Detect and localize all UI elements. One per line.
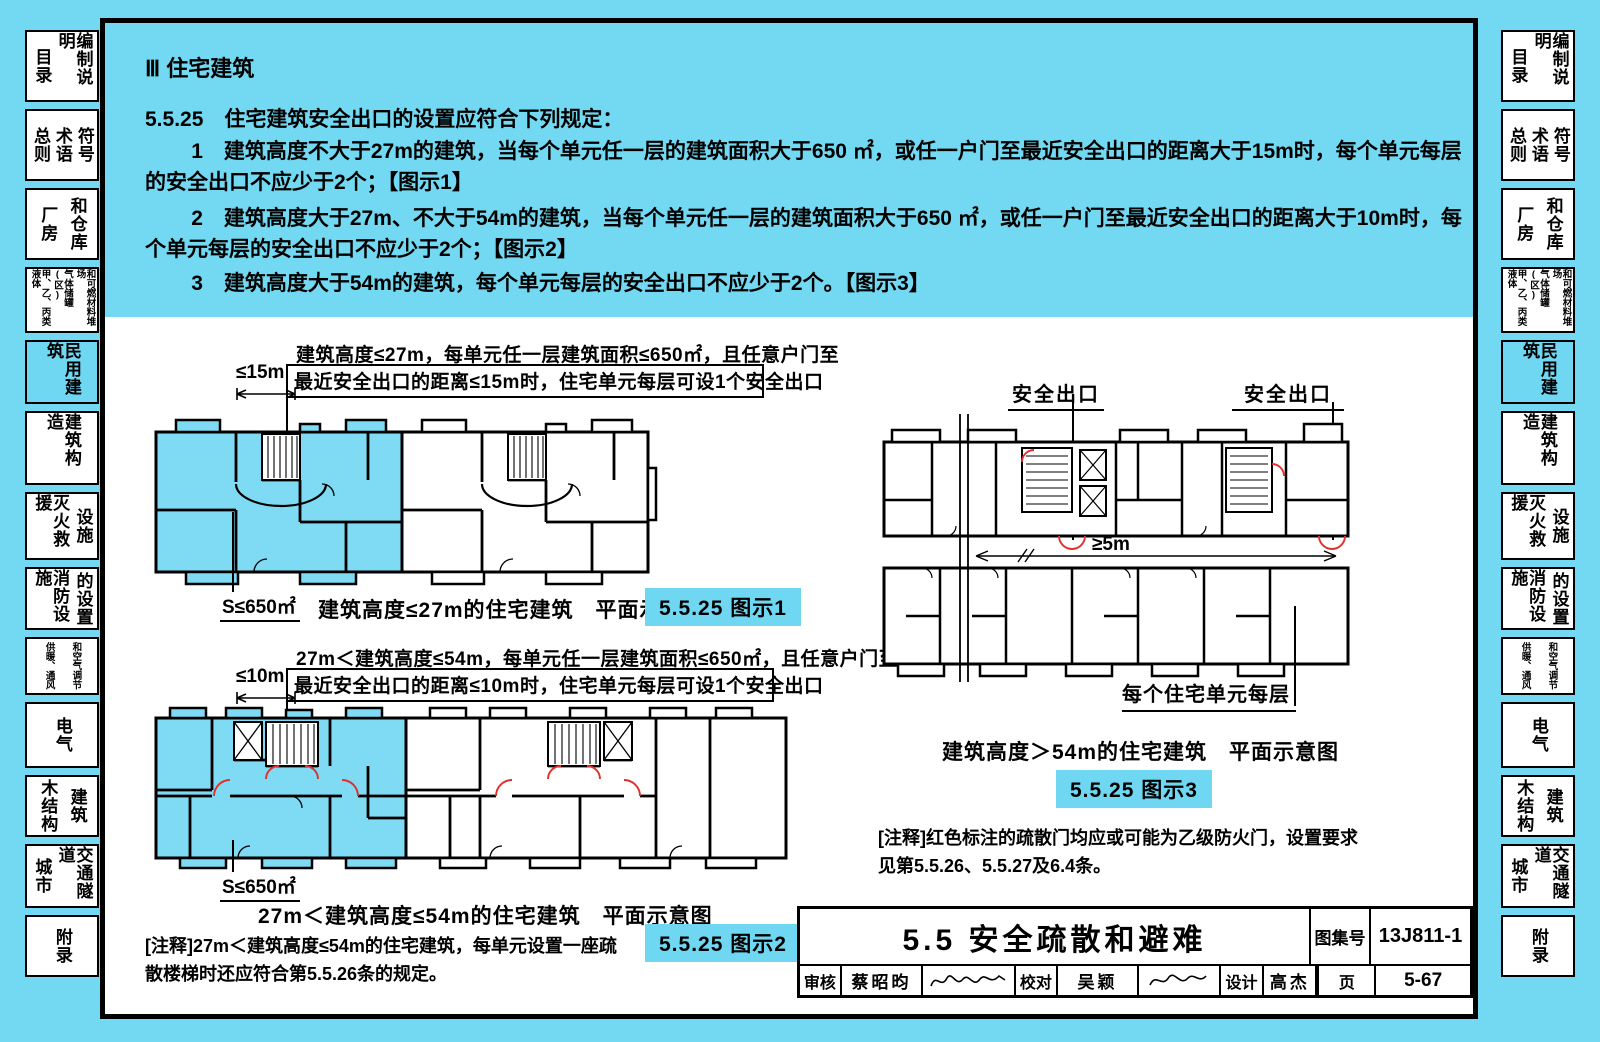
- audit-label: 审核: [800, 966, 840, 995]
- sidebar-item-liquid-gas-storage[interactable]: 甲、乙、丙类液体气体储罐(区)和可燃材料堆场: [1501, 267, 1575, 333]
- sidebar-item-label: 符号: [1551, 127, 1569, 163]
- fig3-caption: 建筑高度＞54m的住宅建筑 平面示意图: [942, 736, 1339, 766]
- sidebar-item-label: 的设置: [74, 572, 92, 626]
- sidebar-item-general-terms-symbols[interactable]: 总则术语符号: [25, 109, 99, 181]
- fig1-area-label: S≤650㎡: [220, 592, 300, 622]
- chapter-sidebar-right: 目录编制说明总则术语符号厂房和仓库甲、乙、丙类液体气体储罐(区)和可燃材料堆场民…: [1501, 30, 1575, 984]
- sidebar-item-label: 和可燃材料堆场: [1551, 269, 1571, 331]
- fig2-annotation-line1: 27m＜建筑高度≤54m，每单元任一层建筑面积≤650㎡，且任意户门至: [296, 644, 898, 671]
- sidebar-item-firefighting-rescue[interactable]: 灭火救援设施: [1501, 492, 1575, 560]
- sidebar-item-label: 灭火救援: [1508, 494, 1544, 558]
- fig1-dimension-arrow: [234, 386, 298, 402]
- fig1-annotation-line2: 最近安全出口的距离≤15m时，住宅单元每层可设1个安全出口: [286, 364, 764, 398]
- signature-scribble: [1146, 969, 1212, 993]
- sidebar-item-label: 电气: [53, 717, 71, 753]
- sidebar-item-label: 灭火救援: [32, 494, 68, 558]
- sidebar-item-label: 和空气调节: [1546, 642, 1556, 690]
- fig1-badge: 5.5.25 图示1: [645, 588, 801, 626]
- titleblock-section-title: 5.5 安全疏散和避难: [800, 909, 1309, 964]
- fig3-unit-label: 每个住宅单元每层: [1122, 678, 1296, 712]
- sidebar-item-electrical[interactable]: 电气: [1501, 702, 1575, 768]
- sidebar-item-toc-notes[interactable]: 目录编制说明: [1501, 30, 1575, 102]
- design-label: 设计: [1219, 966, 1263, 995]
- sidebar-item-label: 电气: [1529, 717, 1547, 753]
- page-label: 页: [1317, 966, 1374, 995]
- floor-plan-figure1: [150, 402, 686, 594]
- fig3-dimension-label: ≥5m: [1092, 534, 1130, 555]
- sidebar-item-appendix[interactable]: 附录: [1501, 915, 1575, 977]
- fig2-annotation-line2: 最近安全出口的距离≤10m时，住宅单元每层可设1个安全出口: [286, 668, 774, 702]
- sidebar-item-civil-buildings[interactable]: 民用建筑: [25, 340, 99, 404]
- sidebar-item-label: 城市: [1508, 858, 1526, 894]
- sidebar-item-general-terms-symbols[interactable]: 总则术语符号: [1501, 109, 1575, 181]
- fig2-area-label: S≤650㎡: [220, 872, 300, 902]
- sidebar-item-label: 甲、乙、丙类液体: [30, 269, 50, 331]
- clause-item-2: 2 建筑高度大于27m、不大于54m的建筑，当每个单元任一层的建筑面积大于650…: [145, 203, 1465, 265]
- sidebar-item-label: 木结构: [38, 779, 56, 833]
- title-block: 5.5 安全疏散和避难 图集号 13J811-1 审核 蔡昭昀 校对 吴颖 设计…: [797, 906, 1473, 998]
- sidebar-item-label: 建筑构造: [44, 413, 80, 483]
- fig3-note: [注释]红色标注的疏散门均应或可能为乙级防火门，设置要求见第5.5.26、5.5…: [878, 824, 1366, 880]
- fig1-area-leader: [232, 512, 234, 592]
- floor-plan-figure2: [150, 700, 794, 874]
- sidebar-item-hvac[interactable]: 供暖、通风和空气调节: [25, 637, 99, 695]
- sidebar-item-toc-notes[interactable]: 目录编制说明: [25, 30, 99, 102]
- page-number: 5-67: [1374, 966, 1470, 995]
- sidebar-item-label: 厂房: [1514, 206, 1532, 242]
- sidebar-item-label: 总则: [1507, 127, 1525, 163]
- sidebar-item-hvac[interactable]: 供暖、通风和空气调节: [1501, 637, 1575, 695]
- sidebar-item-label: 交通隧道: [56, 846, 92, 906]
- sidebar-item-timber-structure[interactable]: 木结构建筑: [25, 775, 99, 837]
- sidebar-item-building-construction[interactable]: 建筑构造: [1501, 411, 1575, 485]
- fig2-dimension-label: ≤10m: [236, 666, 284, 688]
- sidebar-item-city-traffic-tunnel[interactable]: 城市交通隧道: [25, 844, 99, 908]
- check-label: 校对: [1014, 966, 1056, 995]
- sidebar-item-label: 和空气调节: [70, 642, 80, 690]
- sidebar-item-label: 厂房: [38, 206, 56, 242]
- sidebar-item-label: 供暖、通风: [44, 642, 54, 690]
- sidebar-item-fire-facilities[interactable]: 消防设施的设置: [1501, 567, 1575, 630]
- fig2-badge: 5.5.25 图示2: [645, 924, 801, 962]
- fig2-note: [注释]27m＜建筑高度≤54m的住宅建筑，每单元设置一座疏散楼梯时还应符合第5…: [145, 932, 619, 988]
- sidebar-item-label: 设施: [1550, 508, 1568, 544]
- sidebar-item-label: 气体储罐(区): [52, 269, 72, 331]
- sidebar-item-label: 建筑: [68, 788, 86, 824]
- sidebar-item-label: 气体储罐(区): [1528, 269, 1548, 331]
- clause-heading: 5.5.25 住宅建筑安全出口的设置应符合下列规定：: [145, 103, 623, 133]
- sidebar-item-liquid-gas-storage[interactable]: 甲、乙、丙类液体气体储罐(区)和可燃材料堆场: [25, 267, 99, 333]
- sidebar-item-label: 木结构: [1514, 779, 1532, 833]
- sidebar-item-firefighting-rescue[interactable]: 灭火救援设施: [25, 492, 99, 560]
- chapter-sidebar-left: 目录编制说明总则术语符号厂房和仓库甲、乙、丙类液体气体储罐(区)和可燃材料堆场民…: [25, 30, 99, 984]
- sidebar-item-fire-facilities[interactable]: 消防设施的设置: [25, 567, 99, 630]
- sidebar-item-building-construction[interactable]: 建筑构造: [25, 411, 99, 485]
- sidebar-item-timber-structure[interactable]: 木结构建筑: [1501, 775, 1575, 837]
- sidebar-item-label: 术语: [53, 127, 71, 163]
- sidebar-item-label: 设施: [74, 508, 92, 544]
- sidebar-item-factory-warehouse[interactable]: 厂房和仓库: [1501, 188, 1575, 260]
- clause-item-3: 3 建筑高度大于54m的建筑，每个单元每层的安全出口不应少于2个。【图示3】: [145, 268, 1465, 299]
- sidebar-item-label: 术语: [1529, 127, 1547, 163]
- sidebar-item-factory-warehouse[interactable]: 厂房和仓库: [25, 188, 99, 260]
- sidebar-item-label: 建筑: [1544, 788, 1562, 824]
- check-name: 吴颖: [1056, 966, 1137, 995]
- sidebar-item-label: 交通隧道: [1532, 846, 1568, 906]
- sidebar-item-city-traffic-tunnel[interactable]: 城市交通隧道: [1501, 844, 1575, 908]
- audit-signature: [921, 966, 1014, 995]
- sidebar-item-label: 目录: [32, 48, 50, 84]
- atlas-number-value: 13J811-1: [1369, 909, 1470, 964]
- atlas-number-label: 图集号: [1309, 909, 1369, 964]
- design-name: 高杰: [1262, 966, 1315, 995]
- audit-name: 蔡昭昀: [840, 966, 921, 995]
- fig2-area-leader: [232, 840, 234, 872]
- sidebar-item-label: 和仓库: [1544, 197, 1562, 251]
- sidebar-item-label: 消防设施: [1508, 569, 1544, 628]
- sidebar-item-label: 目录: [1508, 48, 1526, 84]
- signature-scribble: [927, 969, 1011, 993]
- sidebar-item-label: 甲、乙、丙类液体: [1506, 269, 1526, 331]
- sidebar-item-label: 的设置: [1550, 572, 1568, 626]
- sidebar-item-label: 城市: [32, 858, 50, 894]
- fig3-badge: 5.5.25 图示3: [1056, 770, 1212, 808]
- sidebar-item-label: 民用建筑: [1520, 342, 1556, 402]
- sidebar-item-appendix[interactable]: 附录: [25, 915, 99, 977]
- sidebar-item-civil-buildings[interactable]: 民用建筑: [1501, 340, 1575, 404]
- clause-item-1: 1 建筑高度不大于27m的建筑，当每个单元任一层的建筑面积大于650 ㎡，或任一…: [145, 136, 1465, 198]
- check-signature: [1137, 966, 1218, 995]
- sidebar-item-label: 消防设施: [32, 569, 68, 628]
- sidebar-item-electrical[interactable]: 电气: [25, 702, 99, 768]
- sidebar-item-label: 附录: [1529, 928, 1547, 964]
- sidebar-item-label: 编制说明: [1532, 32, 1568, 100]
- fig1-dimension-label: ≤15m: [236, 362, 284, 384]
- sidebar-item-label: 和仓库: [68, 197, 86, 251]
- sidebar-item-label: 民用建筑: [44, 342, 80, 402]
- sidebar-item-label: 编制说明: [56, 32, 92, 100]
- sidebar-item-label: 总则: [31, 127, 49, 163]
- sidebar-item-label: 符号: [75, 127, 93, 163]
- fig1-annotation-line1: 建筑高度≤27m，每单元任一层建筑面积≤650㎡，且任意户门至: [296, 340, 839, 367]
- section-title: Ⅲ 住宅建筑: [145, 51, 254, 83]
- sidebar-item-label: 建筑构造: [1520, 413, 1556, 483]
- sidebar-item-label: 附录: [53, 928, 71, 964]
- sidebar-item-label: 供暖、通风: [1520, 642, 1530, 690]
- atlas-page: 目录编制说明总则术语符号厂房和仓库甲、乙、丙类液体气体储罐(区)和可燃材料堆场民…: [0, 0, 1600, 1042]
- floor-plan-figure3: ≥5m: [876, 404, 1358, 690]
- sidebar-item-label: 和可燃材料堆场: [75, 269, 95, 331]
